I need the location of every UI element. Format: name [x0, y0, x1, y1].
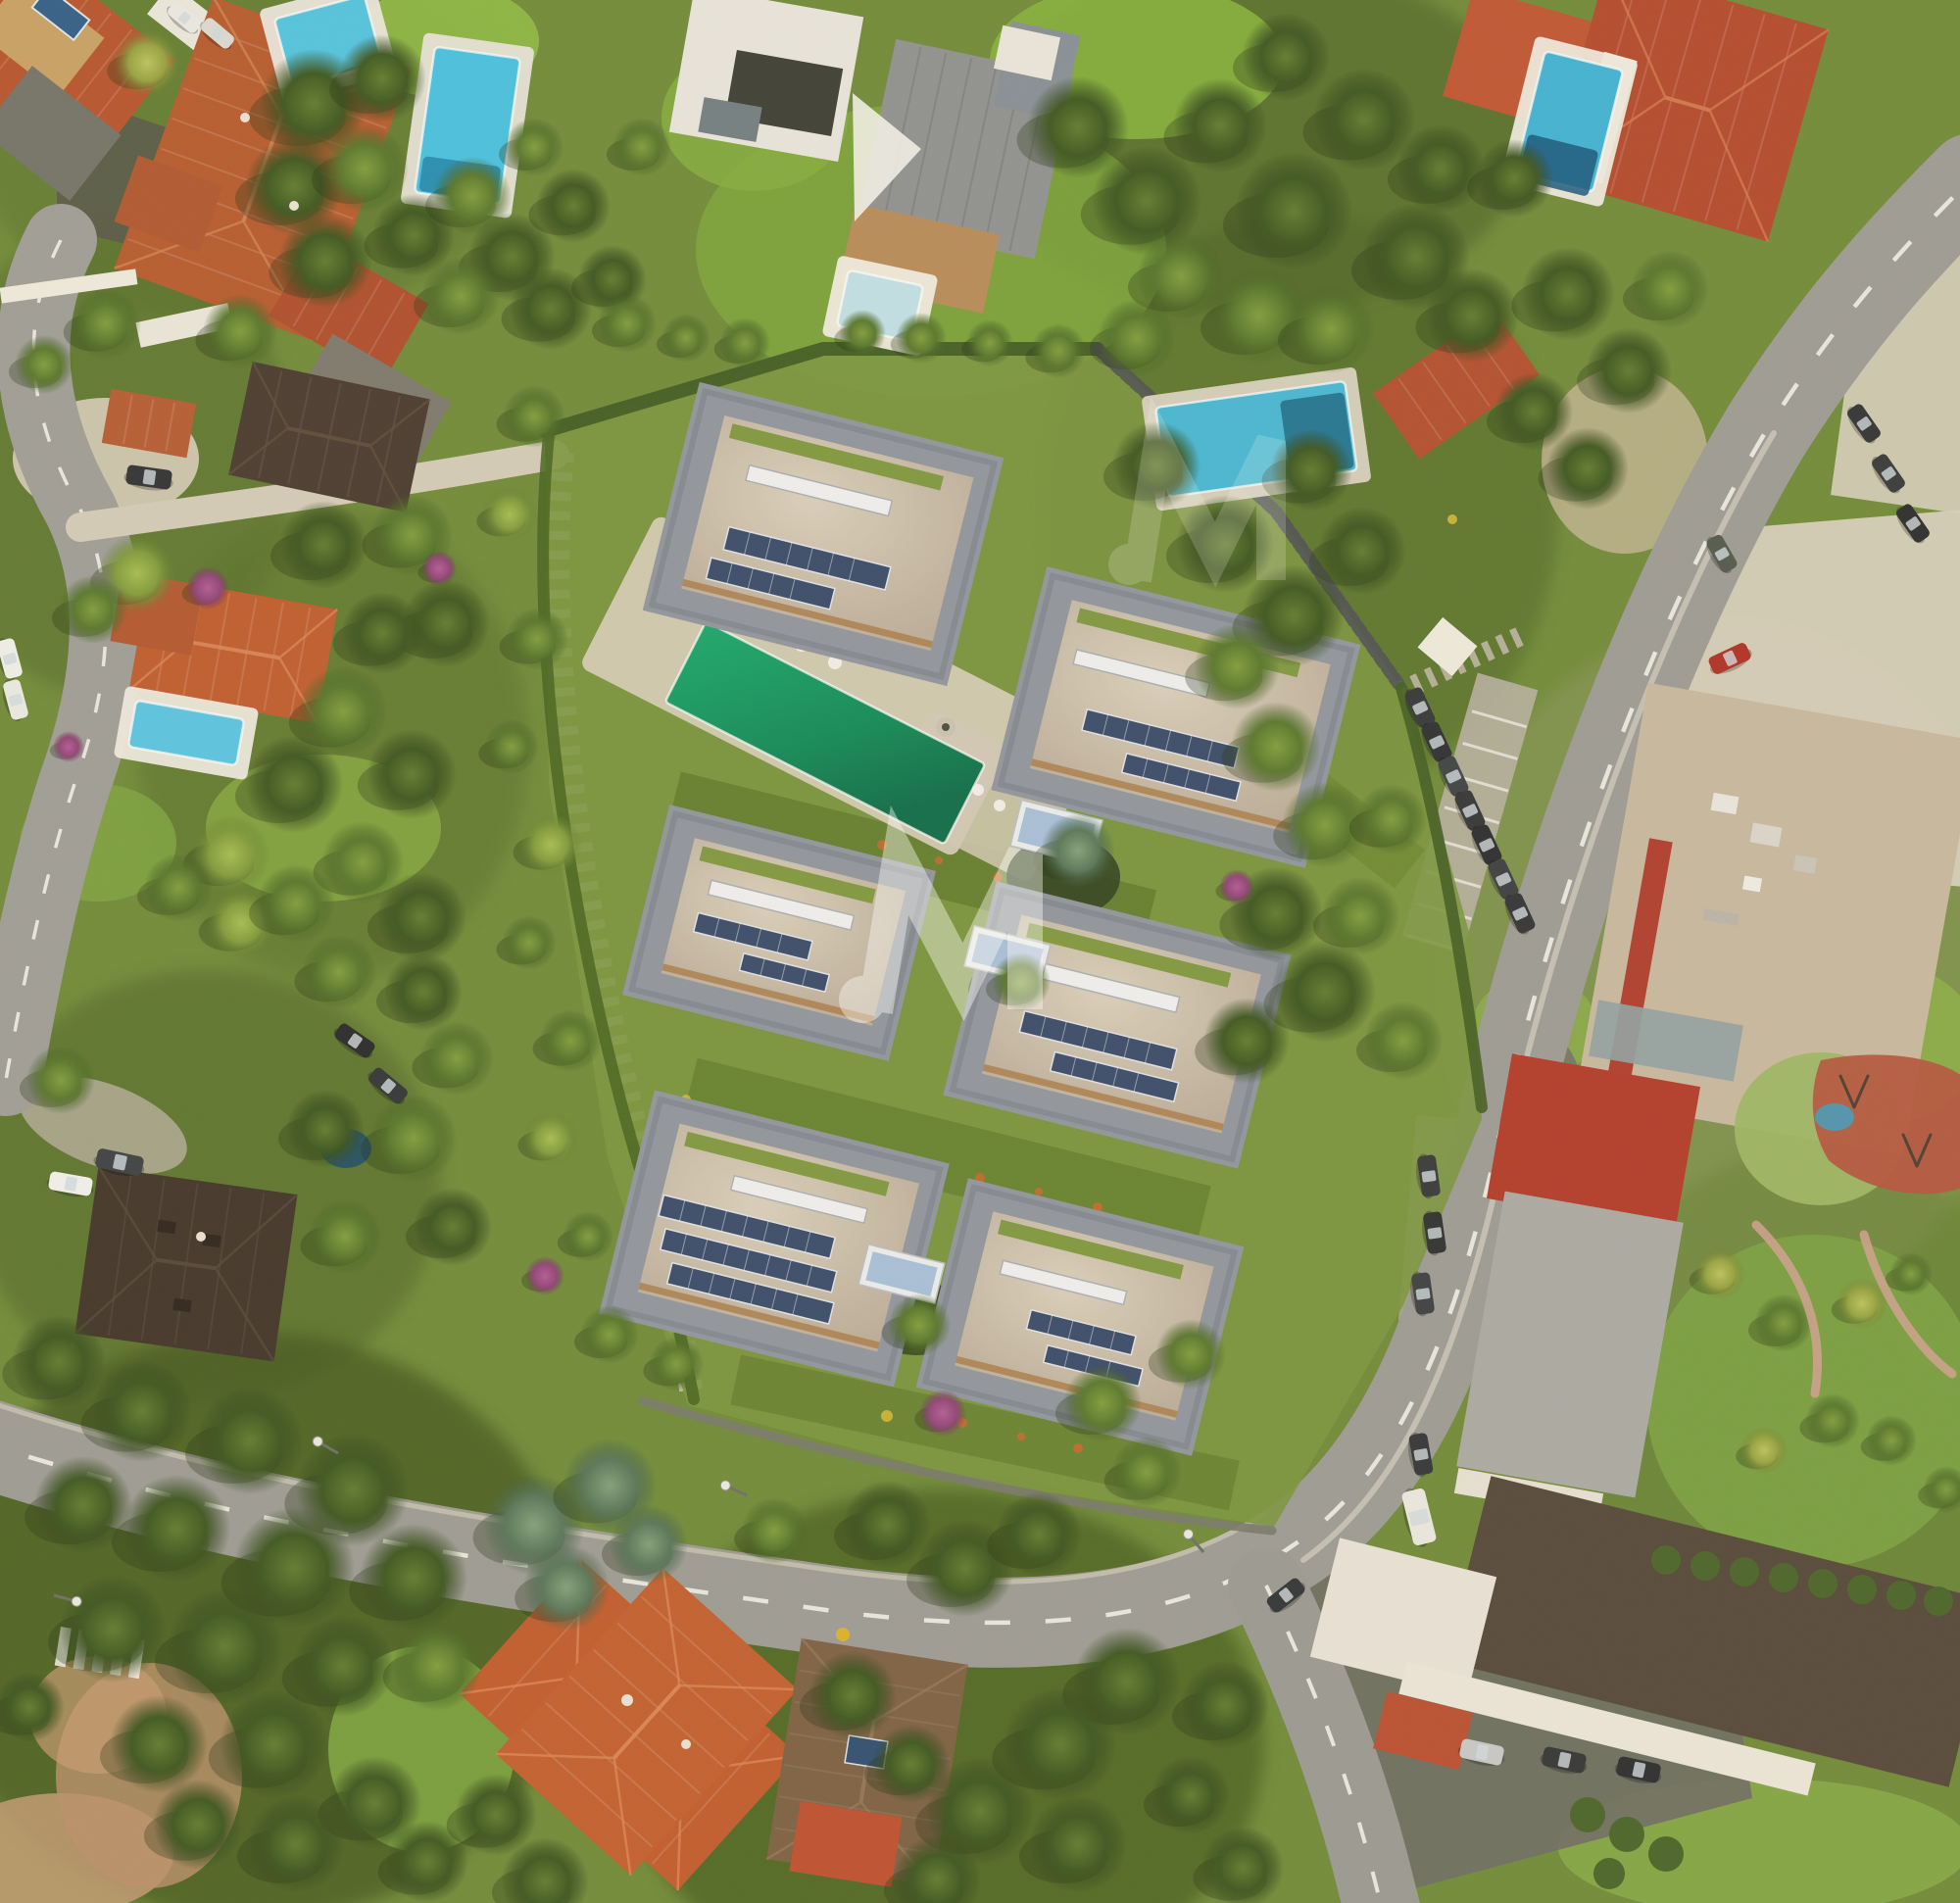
photo-tint — [0, 0, 1960, 1903]
scene-root — [0, 0, 1960, 1903]
aerial-image — [0, 0, 1960, 1903]
layer-photo-overlay — [0, 0, 1960, 1903]
aerial-photo-stage — [0, 0, 1960, 1903]
